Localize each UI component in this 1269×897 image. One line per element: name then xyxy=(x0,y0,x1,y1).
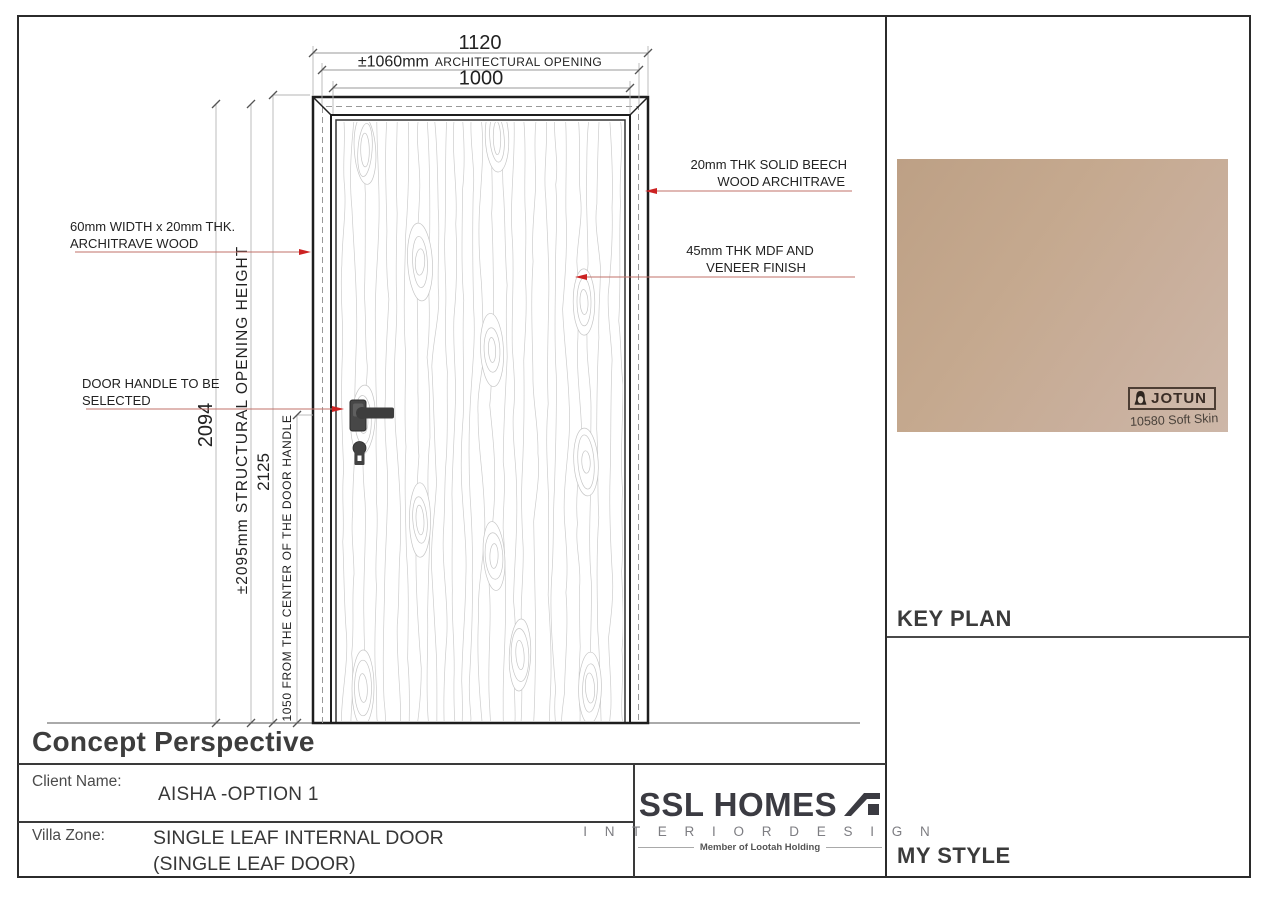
logo-tagline: Member of Lootah Holding xyxy=(700,842,820,853)
my-style-label: MY STYLE xyxy=(897,843,1011,869)
paint-brand-badge: JOTUN xyxy=(1128,387,1216,410)
villa-zone-label: Villa Zone: xyxy=(32,827,105,845)
tagline-rule-left xyxy=(638,847,694,848)
dim-handle-height: 1050 FROM THE CENTER OF THE DOOR HANDLE xyxy=(280,414,294,721)
logo-wordmark: SSL HOMES xyxy=(639,788,837,822)
villa-zone-value: SINGLE LEAF INTERNAL DOOR (SINGLE LEAF D… xyxy=(153,825,444,877)
logo-subtitle: I N T E R I O R D E S I G N xyxy=(583,824,937,839)
paint-brand-name: JOTUN xyxy=(1151,390,1207,407)
drawing-sheet: 1120 ±1060mmARCHITECTURAL OPENING 1000 2… xyxy=(0,0,1269,897)
note-architrave-right-line1: 20mm THK SOLID BEECH xyxy=(690,157,847,172)
note-architrave-left-line2: ARCHITRAVE WOOD xyxy=(70,236,198,251)
penguin-icon xyxy=(1134,391,1147,406)
villa-zone-line2: (SINGLE LEAF DOOR) xyxy=(153,851,444,877)
paint-swatch: JOTUN 10580 Soft Skin xyxy=(897,159,1228,432)
company-logo: SSL HOMES I N T E R I O R D E S I G N Me… xyxy=(634,764,886,877)
dim-leaf-width: 1000 xyxy=(459,68,504,90)
roof-icon xyxy=(843,788,881,820)
note-architrave-right-line2: WOOD ARCHITRAVE xyxy=(717,174,845,189)
tagline-rule-right xyxy=(826,847,882,848)
dim-overall-width: 1120 xyxy=(458,32,501,54)
dim-structural-opening-height: ±2095mm STRUCTURAL OPENING HEIGHT xyxy=(234,246,251,594)
villa-zone-line1: SINGLE LEAF INTERNAL DOOR xyxy=(153,825,444,851)
client-name-label: Client Name: xyxy=(32,773,122,791)
note-handle-line1: DOOR HANDLE TO BE xyxy=(82,376,220,391)
keyhole-escutcheon xyxy=(353,442,366,466)
page-title: Concept Perspective xyxy=(32,726,315,758)
key-plan-label: KEY PLAN xyxy=(897,606,1012,632)
note-architrave-left-line1: 60mm WIDTH x 20mm THK. xyxy=(70,219,235,234)
client-name-value: AISHA -OPTION 1 xyxy=(158,784,319,806)
dim-height-2125: 2125 xyxy=(254,453,273,491)
note-handle-line2: SELECTED xyxy=(82,393,151,408)
note-leaf-line2: VENEER FINISH xyxy=(706,260,806,275)
note-leaf-line1: 45mm THK MDF AND xyxy=(686,243,814,258)
paint-color-code: 10580 Soft Skin xyxy=(1129,411,1218,429)
door-elevation-drawing: 1120 ±1060mmARCHITECTURAL OPENING 1000 2… xyxy=(0,0,1269,897)
